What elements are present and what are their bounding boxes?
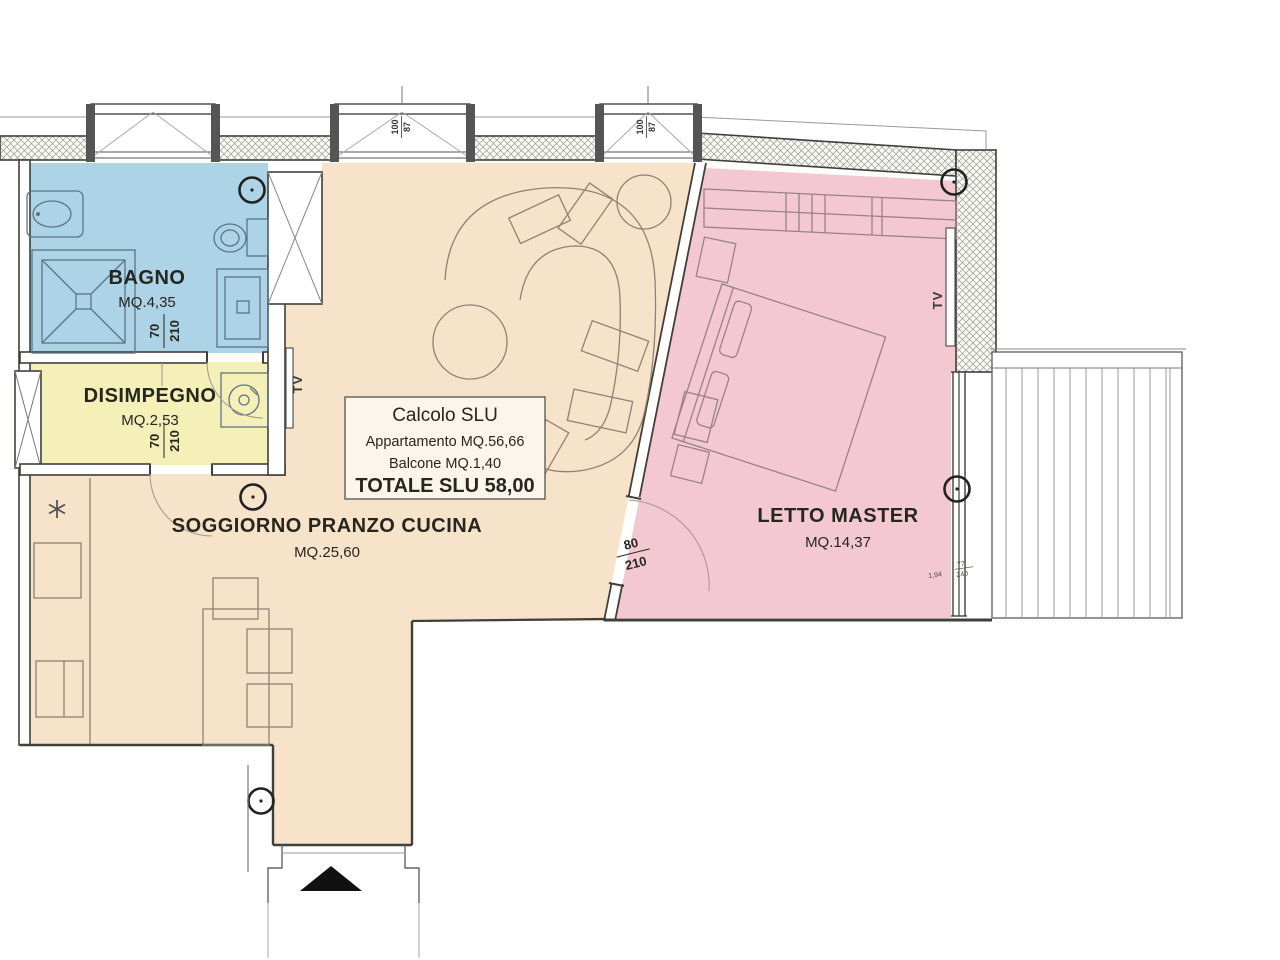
slu-title: Calcolo SLU [392,405,498,426]
bagno-door-width: 70 [147,324,162,338]
window-dim-left-height: 87 [402,122,412,132]
floor-plan: 100 87 100 87 [0,0,1280,960]
slu-box: Calcolo SLU Appartamento MQ.56,66 Balcon… [345,397,545,499]
tv-board-letto [946,228,955,346]
bagno-area: MQ.4,35 [118,294,176,311]
soggiorno-area: MQ.25,60 [294,544,360,561]
disimpegno-door-width: 70 [147,434,162,448]
slu-total: TOTALE SLU 58,00 [355,475,534,497]
bagno-label: BAGNO [109,267,186,289]
slu-apartment: Appartamento MQ.56,66 [366,434,525,450]
window-dim-left-width: 100 [390,119,400,134]
slu-balcony: Balcone MQ.1,40 [389,456,501,472]
balcony [990,349,1186,618]
disimpegno-door-height: 210 [167,430,182,452]
window-dim-right-height: 87 [647,122,657,132]
letto-label: LETTO MASTER [757,505,918,527]
soggiorno-label: SOGGIORNO PRANZO CUCINA [172,515,482,537]
window-bagno [86,104,220,162]
disimpegno-area: MQ.2,53 [121,412,179,429]
tv-label-soggiorno: TV [290,375,305,394]
letto-window [951,372,967,618]
window-dim-right-width: 100 [635,119,645,134]
letto-area: MQ.14,37 [805,534,871,551]
entrance-arrow-icon [300,866,362,891]
tv-label-letto: TV [930,291,945,310]
disimpegno-label: DISIMPEGNO [84,385,217,407]
pillar [268,172,322,304]
left-wall-window [15,371,41,468]
bagno-door-height: 210 [167,320,182,342]
